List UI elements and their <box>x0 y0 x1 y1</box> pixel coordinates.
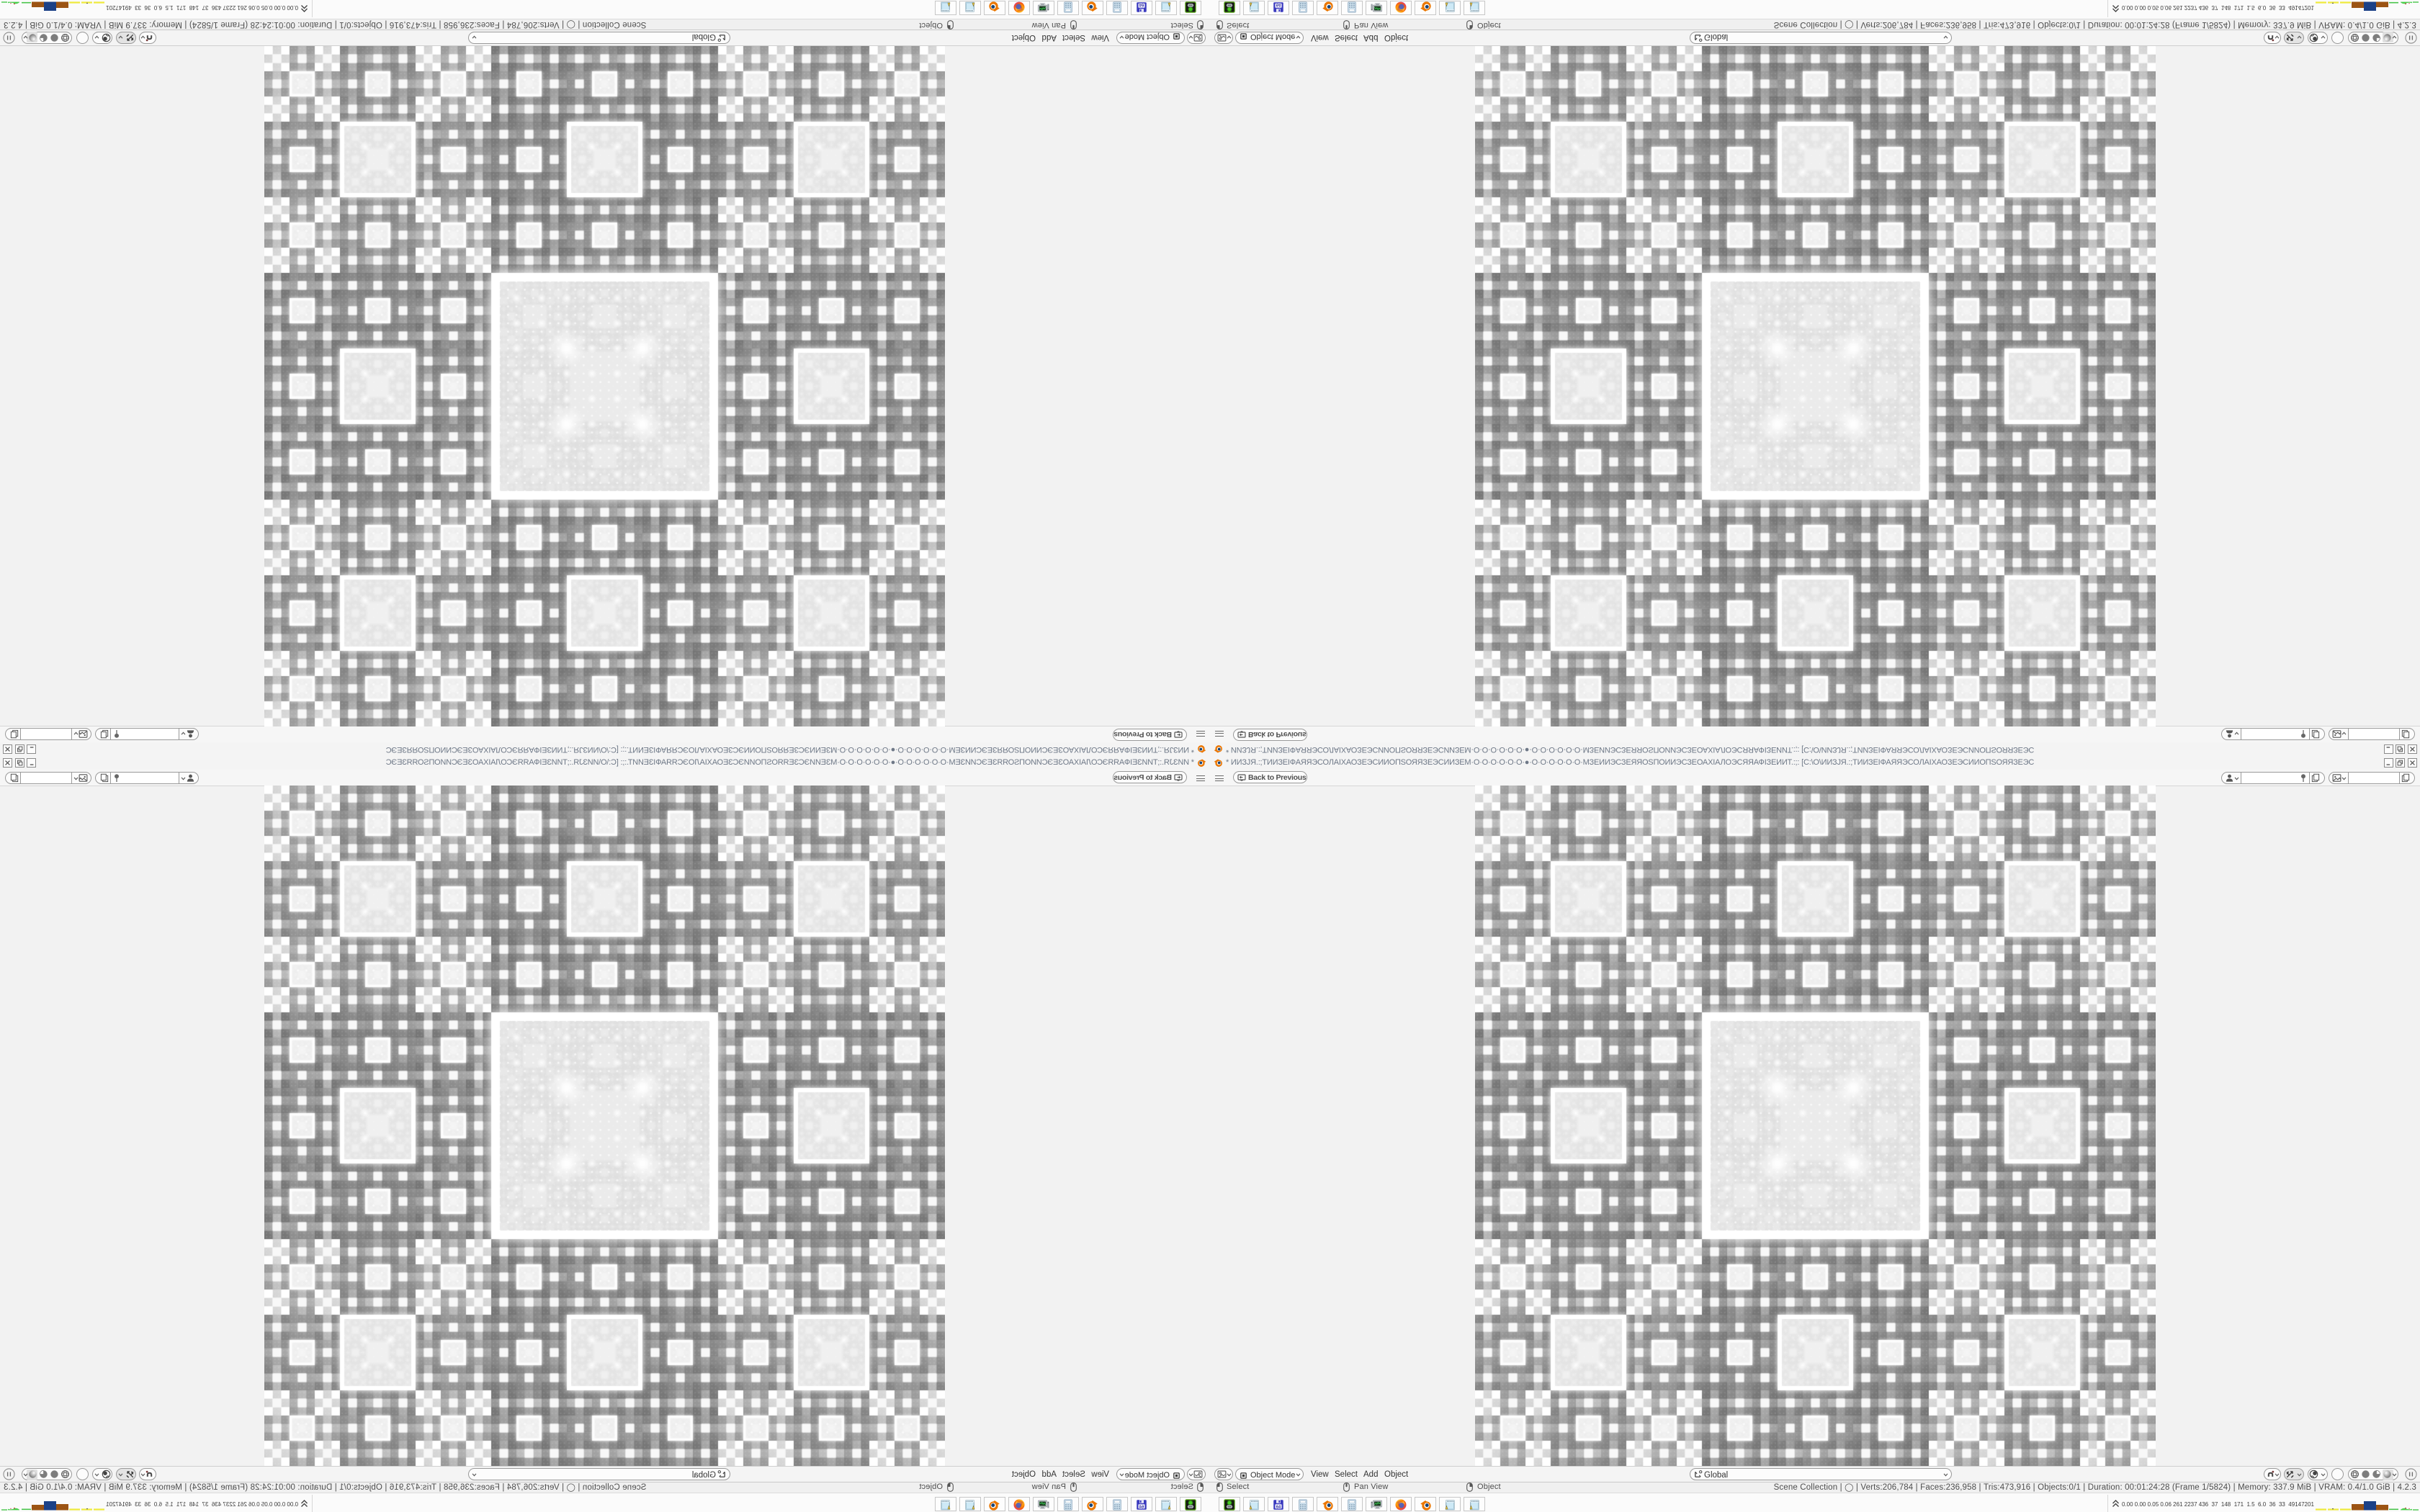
svg-text:64: 64 <box>1276 3 1281 7</box>
svg-text:64: 64 <box>1139 3 1144 7</box>
svg-text:64: 64 <box>1139 1505 1144 1509</box>
svg-text:64: 64 <box>1276 1505 1281 1509</box>
